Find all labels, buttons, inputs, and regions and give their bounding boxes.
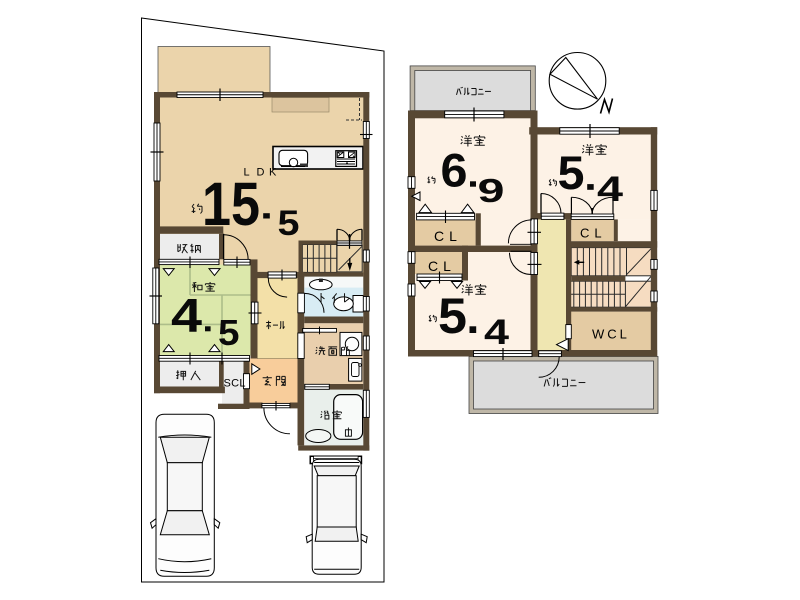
svg-text:SCL: SCL <box>224 378 246 390</box>
svg-text:CL: CL <box>428 258 456 274</box>
svg-text:9: 9 <box>478 172 505 209</box>
svg-text:5: 5 <box>278 204 300 243</box>
svg-text:CL: CL <box>434 228 462 244</box>
svg-text:15: 15 <box>202 170 260 238</box>
svg-text:4: 4 <box>597 170 624 209</box>
svg-text:4: 4 <box>171 288 202 341</box>
svg-text:5: 5 <box>218 312 240 353</box>
svg-text:CL: CL <box>580 226 607 241</box>
svg-text:WCL: WCL <box>592 327 630 342</box>
svg-text:4: 4 <box>484 313 510 352</box>
svg-text:5: 5 <box>558 146 585 199</box>
svg-text:K: K <box>269 167 277 179</box>
svg-text:5: 5 <box>438 288 467 344</box>
svg-text:6: 6 <box>441 144 468 197</box>
